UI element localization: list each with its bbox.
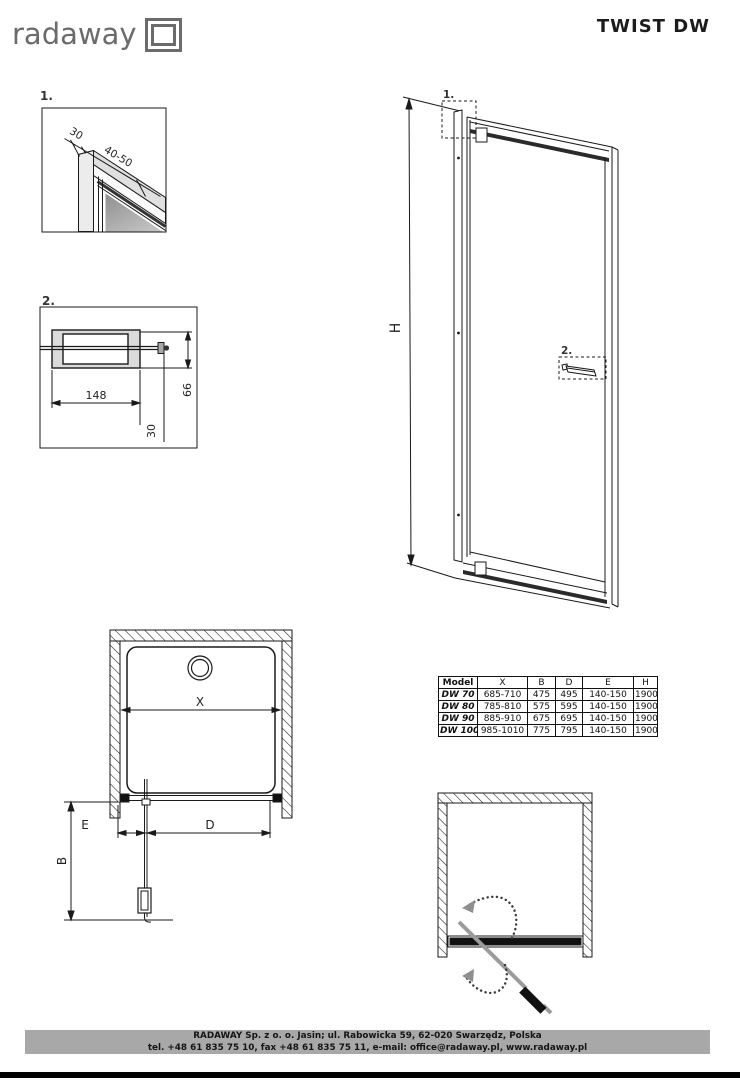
value-cell: 595 — [556, 701, 583, 713]
value-cell: 985-1010 — [478, 725, 528, 737]
model-cell: DW 90 — [439, 713, 478, 725]
value-cell: 685-710 — [478, 689, 528, 701]
value-cell: 140-150 — [583, 725, 634, 737]
value-cell: 140-150 — [583, 713, 634, 725]
walls-hatched — [110, 630, 292, 818]
pivot-blocks — [475, 128, 487, 575]
value-cell: 885-910 — [478, 713, 528, 725]
door-elevation-drawing: H 1. 2. — [385, 85, 635, 630]
value-cell: 495 — [556, 689, 583, 701]
footer-bar: RADAWAY Sp. z o. o. Jasin; ul. Rabowicka… — [25, 1030, 710, 1054]
page-title: TWIST DW — [597, 16, 710, 37]
detail-2-frame — [40, 307, 197, 448]
closed-door-bar — [448, 936, 583, 947]
column-header: E — [583, 677, 634, 689]
column-header: B — [528, 677, 556, 689]
table-header-row: ModelXBDEH — [439, 677, 658, 689]
detail-1-corner-profile-drawing: 1. 30 — [30, 85, 210, 245]
detail-2-dim-148: 148 — [86, 389, 107, 402]
value-cell: 1900 — [634, 713, 658, 725]
dimension-h — [403, 97, 460, 578]
column-header: D — [556, 677, 583, 689]
wall-profile — [454, 110, 462, 562]
model-cell: DW 70 — [439, 689, 478, 701]
detail-2-label: 2. — [42, 294, 55, 308]
value-cell: 695 — [556, 713, 583, 725]
table-row: DW 100985-1010775795140-1501900 — [439, 725, 658, 737]
drain — [188, 656, 212, 680]
model-cell: DW 100 — [439, 725, 478, 737]
table-row: DW 80785-810575595140-1501900 — [439, 701, 658, 713]
spec-sheet-page: radaway TWIST DW 1. — [0, 0, 740, 1080]
plan-dim-d-label: D — [205, 818, 214, 832]
model-cell: DW 80 — [439, 701, 478, 713]
elevation-marker-1: 1. — [443, 89, 454, 101]
elevation-dim-h-label: H — [388, 323, 404, 334]
detail-2-dim-30: 30 — [145, 424, 158, 438]
value-cell: 775 — [528, 725, 556, 737]
door-swing-diagram — [420, 780, 620, 1030]
radaway-logo-text: radaway — [12, 19, 137, 49]
value-cell: 675 — [528, 713, 556, 725]
value-cell: 575 — [528, 701, 556, 713]
door-frame — [455, 117, 618, 608]
logo-icon-inner-frame — [151, 24, 176, 46]
column-header: Model — [439, 677, 478, 689]
value-cell: 140-150 — [583, 689, 634, 701]
value-cell: 1900 — [634, 689, 658, 701]
detail-2-handle-drawing: 2. 148 66 30 — [30, 290, 210, 460]
value-cell: 475 — [528, 689, 556, 701]
plan-dim-x-label: X — [196, 695, 204, 709]
marker-2-callout — [559, 357, 606, 379]
footer-address: RADAWAY Sp. z o. o. Jasin; ul. Rabowicka… — [25, 1030, 710, 1043]
spec-table: ModelXBDEH DW 70685-710475495140-1501900… — [438, 676, 658, 737]
table-row: DW 90885-910675695140-1501900 — [439, 713, 658, 725]
table-row: DW 70685-710475495140-1501900 — [439, 689, 658, 701]
elevation-marker-2: 2. — [561, 345, 572, 357]
value-cell: 1900 — [634, 725, 658, 737]
column-header: X — [478, 677, 528, 689]
shower-tray — [127, 647, 275, 793]
plan-dim-e-label: E — [81, 818, 89, 832]
dimension-e-d — [118, 800, 270, 838]
value-cell: 140-150 — [583, 701, 634, 713]
value-cell: 795 — [556, 725, 583, 737]
column-header: H — [634, 677, 658, 689]
detail-1-label: 1. — [40, 89, 53, 103]
walls-hatched — [438, 793, 592, 957]
plan-dim-b-label: B — [55, 857, 69, 865]
plan-view-drawing: X E D B — [40, 615, 300, 935]
value-cell: 1900 — [634, 701, 658, 713]
footer-contacts: tel. +48 61 835 75 10, fax +48 61 835 75… — [25, 1043, 710, 1055]
radaway-logo-icon — [145, 18, 182, 52]
value-cell: 785-810 — [478, 701, 528, 713]
bottom-rule — [0, 1072, 740, 1078]
detail-2-dim-66: 66 — [181, 383, 194, 397]
